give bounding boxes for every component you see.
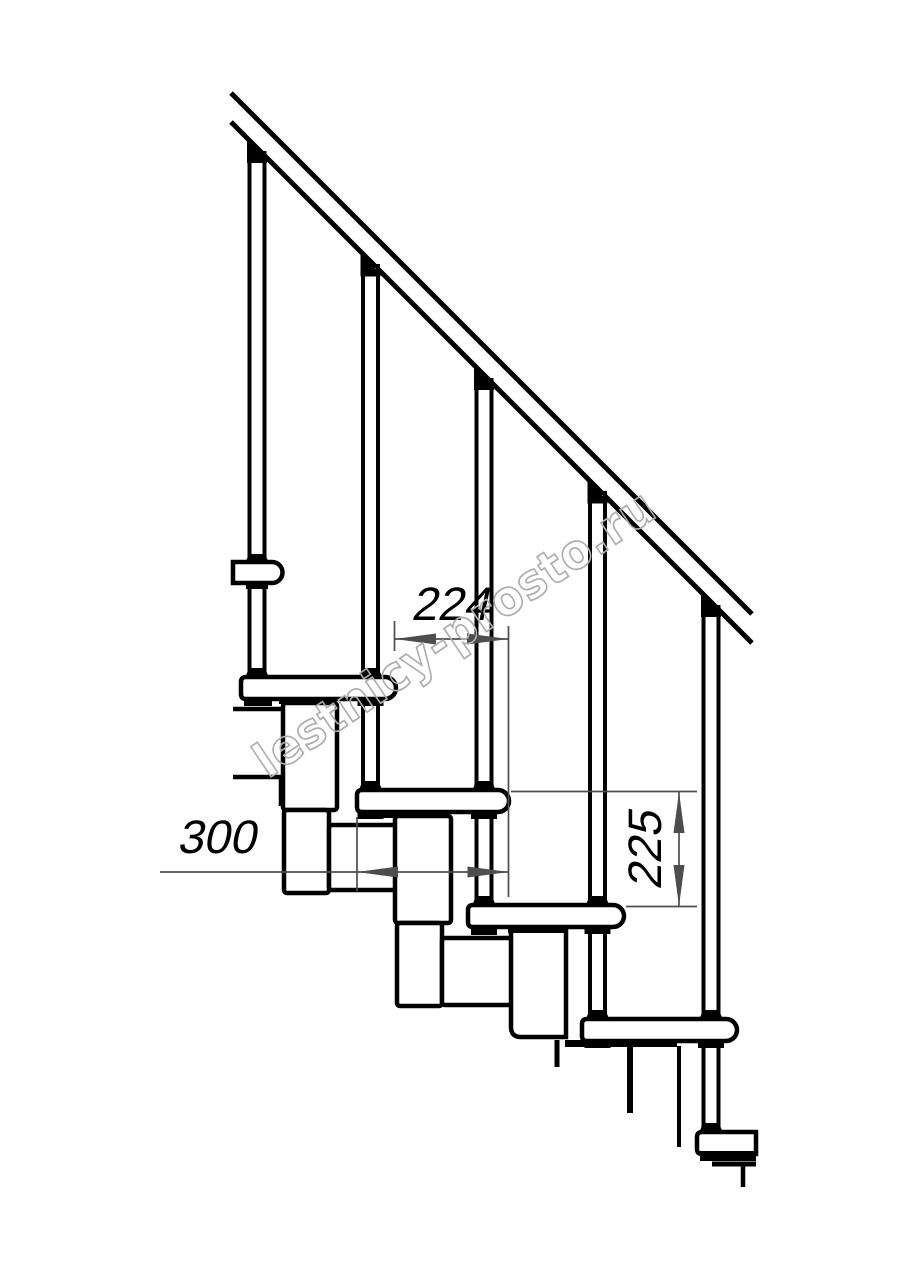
tread-2 [357, 790, 509, 812]
upper-rail-section [233, 554, 283, 589]
dimension-label-tread-depth: 300 [174, 811, 264, 863]
baluster-1 [247, 140, 267, 680]
tread-3 [468, 905, 624, 927]
staircase-technical-drawing: 224 300 225 lestnicy-prosto.ru [0, 0, 914, 1280]
dimension-label-step-rise: 225 [619, 803, 671, 893]
baluster-5 [701, 594, 721, 1135]
tread-4 [582, 1019, 737, 1041]
support-modules [283, 703, 756, 1187]
staircase-drawing-page: 224 300 225 lestnicy-prosto.ru [0, 0, 914, 1280]
tread-5 [697, 1132, 756, 1154]
